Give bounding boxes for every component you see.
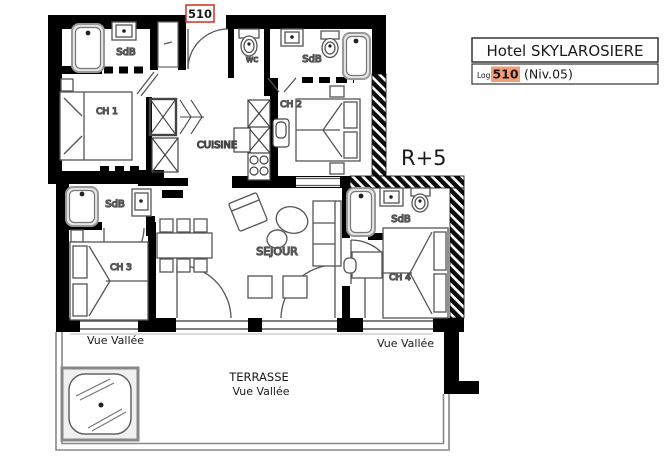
dining-table xyxy=(157,233,212,258)
pouf xyxy=(248,276,272,298)
counter xyxy=(248,100,270,180)
burner xyxy=(250,156,258,164)
burner xyxy=(260,156,268,164)
unit-badge: 510 xyxy=(186,5,214,22)
unit-number: 510 xyxy=(492,67,518,82)
sink xyxy=(380,188,403,206)
log-label: Log xyxy=(477,71,491,80)
closet xyxy=(158,22,178,67)
bed-double xyxy=(296,99,360,161)
room-label-ch2: CH 2 xyxy=(280,100,302,110)
sink xyxy=(281,29,303,46)
room-label-cuisine: CUISINE xyxy=(197,140,237,151)
desk-chair xyxy=(344,258,356,273)
room-label-ch4: CH 4 xyxy=(389,273,411,283)
bed-double xyxy=(70,242,148,320)
folding-door xyxy=(180,100,204,134)
nightstand xyxy=(330,86,344,97)
armchair xyxy=(228,192,267,231)
room-label-sdb1: SdB xyxy=(116,47,136,58)
bedroom-2: CH 2 xyxy=(280,86,360,174)
sink xyxy=(112,22,136,40)
wardrobes xyxy=(150,99,204,172)
bed-single xyxy=(60,92,132,160)
unit-badge-number: 510 xyxy=(188,7,212,21)
bathtub xyxy=(72,24,104,72)
bedroom-4: CH 4 xyxy=(344,228,448,318)
info-box: Hotel SKYLAROSIERE Log 510 (Niv.05) xyxy=(472,38,658,84)
burner xyxy=(250,167,258,175)
room-label-sdb3: SdB xyxy=(105,199,125,210)
lounge-chair xyxy=(265,203,311,250)
level-label: (Niv.05) xyxy=(524,67,573,82)
room-label-wc: wc xyxy=(246,55,258,65)
kitchen-sink xyxy=(273,119,289,147)
toilet xyxy=(411,188,430,212)
toilet xyxy=(239,29,259,56)
room-label-sejour: SEJOUR xyxy=(256,245,298,258)
room-label-sdb4: SdB xyxy=(391,214,411,225)
pouf xyxy=(283,276,307,298)
hotel-name: Hotel SKYLAROSIERE xyxy=(486,42,643,60)
wardrobe-1 xyxy=(150,99,176,135)
toilet xyxy=(321,31,339,58)
nightstand xyxy=(71,230,83,242)
room-label-sdb2: SdB xyxy=(302,54,322,65)
floor-plan-drawing: SdB wc SdB xyxy=(0,0,671,475)
bathroom-top-left: SdB xyxy=(72,22,178,72)
wc-room: wc xyxy=(239,29,259,65)
terrace-label: TERRASSE xyxy=(228,370,289,384)
entry-door-arc xyxy=(188,29,228,69)
room-label-ch1: CH 1 xyxy=(96,107,118,117)
terrace-view-label: Vue Vallée xyxy=(232,385,289,398)
bathroom-top-right: SdB xyxy=(281,29,370,79)
sink xyxy=(132,189,151,216)
sofa xyxy=(313,201,341,266)
wardrobe-2 xyxy=(152,138,178,172)
bedroom-1: CH 1 xyxy=(60,79,132,160)
living-room: SEJOUR xyxy=(157,192,341,298)
bedroom-3: CH 3 xyxy=(70,230,148,320)
bathtub xyxy=(66,187,98,226)
nightstand xyxy=(61,79,73,91)
burner xyxy=(260,167,268,175)
floor-plan-page: SdB wc SdB xyxy=(0,0,671,475)
view-label-left: Vue Vallée xyxy=(87,334,144,347)
nightstand xyxy=(330,163,344,174)
dining-table-set xyxy=(157,219,212,272)
floor-level-label: R+5 xyxy=(401,146,447,170)
bathroom-mid-left: SdB xyxy=(66,187,151,226)
hot-tub xyxy=(62,368,138,440)
view-label-right: Vue Vallée xyxy=(377,337,434,350)
room-label-ch3: CH 3 xyxy=(110,263,132,273)
bathtub xyxy=(343,33,370,79)
bathtub xyxy=(347,188,375,236)
desk xyxy=(344,252,382,278)
